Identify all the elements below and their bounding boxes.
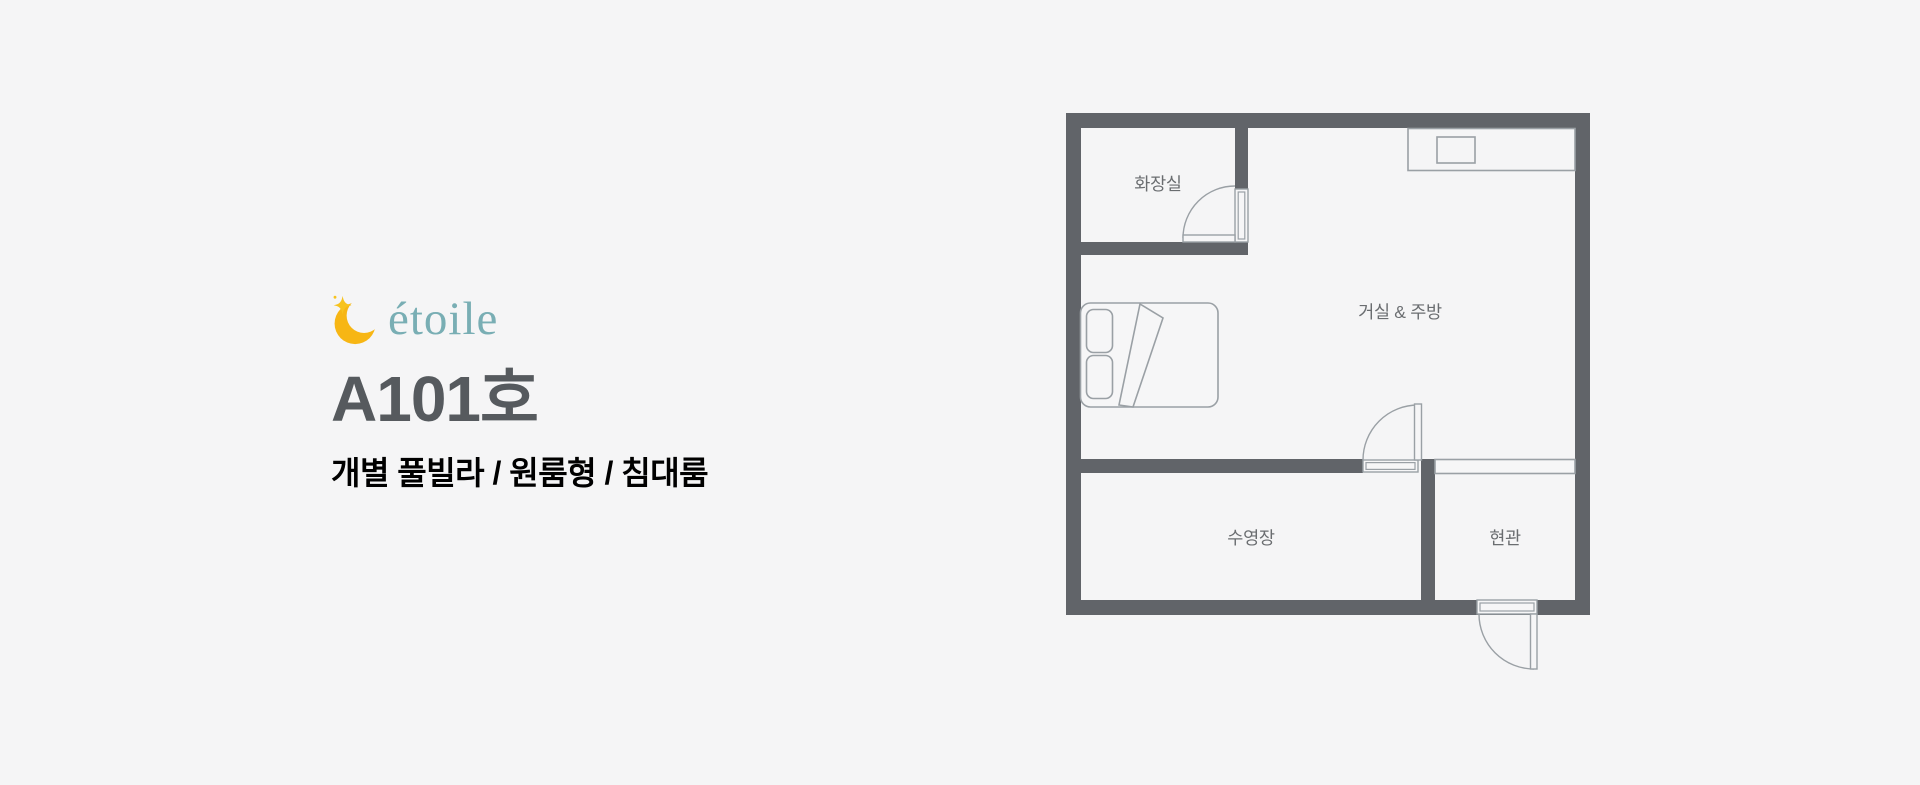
floorplan: 화장실 거실 & 주방 수영장 현관 (1040, 85, 1620, 697)
pool-door-leaf (1415, 404, 1422, 460)
floorplan-svg: 화장실 거실 & 주방 수영장 현관 (1040, 85, 1620, 697)
entrance-door-frame (1477, 600, 1537, 614)
kitchen-sink-icon (1437, 137, 1475, 163)
bed-pillow-top (1087, 310, 1113, 353)
wall-right (1575, 113, 1590, 615)
wall-left (1066, 113, 1081, 615)
crescent-moon-with-sparkle-icon (331, 291, 381, 349)
sparkle-dot-icon (334, 296, 337, 299)
pool-door-sill (1363, 460, 1418, 472)
brand-block: étoile A101호 개별 풀빌라 / 원룸형 / 침대룸 (331, 291, 708, 492)
pool-door (1363, 404, 1422, 472)
room-label-bathroom: 화장실 (1134, 174, 1181, 194)
wall-pool-entrance-divider (1421, 459, 1435, 600)
bed-group (1081, 303, 1219, 407)
entrance-door (1477, 600, 1537, 669)
wall-bathroom-bottom (1081, 242, 1248, 255)
wall-pool-top (1081, 459, 1363, 473)
wall-entrance-top-outline (1435, 460, 1575, 474)
room-label-pool: 수영장 (1227, 528, 1275, 548)
crescent-moon-shape (335, 303, 376, 344)
wall-bathroom-right (1235, 128, 1248, 189)
bathroom-door-frame (1235, 189, 1248, 242)
wall-top (1066, 113, 1590, 128)
room-label-entrance: 현관 (1489, 528, 1521, 548)
kitchen-counter (1408, 129, 1575, 171)
logo-text: étoile (388, 291, 498, 347)
pool-door-arc (1363, 405, 1418, 460)
bathroom-door (1183, 186, 1248, 242)
entrance-door-arc (1479, 614, 1534, 669)
room-title: A101호 (331, 369, 708, 429)
kitchen-counter-group (1408, 129, 1575, 171)
room-subtitle: 개별 풀빌라 / 원룸형 / 침대룸 (331, 454, 708, 492)
bathroom-door-arc (1183, 186, 1235, 238)
page-background: étoile A101호 개별 풀빌라 / 원룸형 / 침대룸 (0, 0, 1920, 785)
bed-pillow-bottom (1087, 356, 1113, 399)
entrance-door-leaf (1531, 614, 1538, 669)
partition-walls (1435, 460, 1575, 474)
logo: étoile (331, 291, 708, 349)
bathroom-door-leaf (1183, 235, 1235, 242)
doors (1183, 186, 1537, 669)
room-label-living-kitchen: 거실 & 주방 (1358, 302, 1442, 322)
